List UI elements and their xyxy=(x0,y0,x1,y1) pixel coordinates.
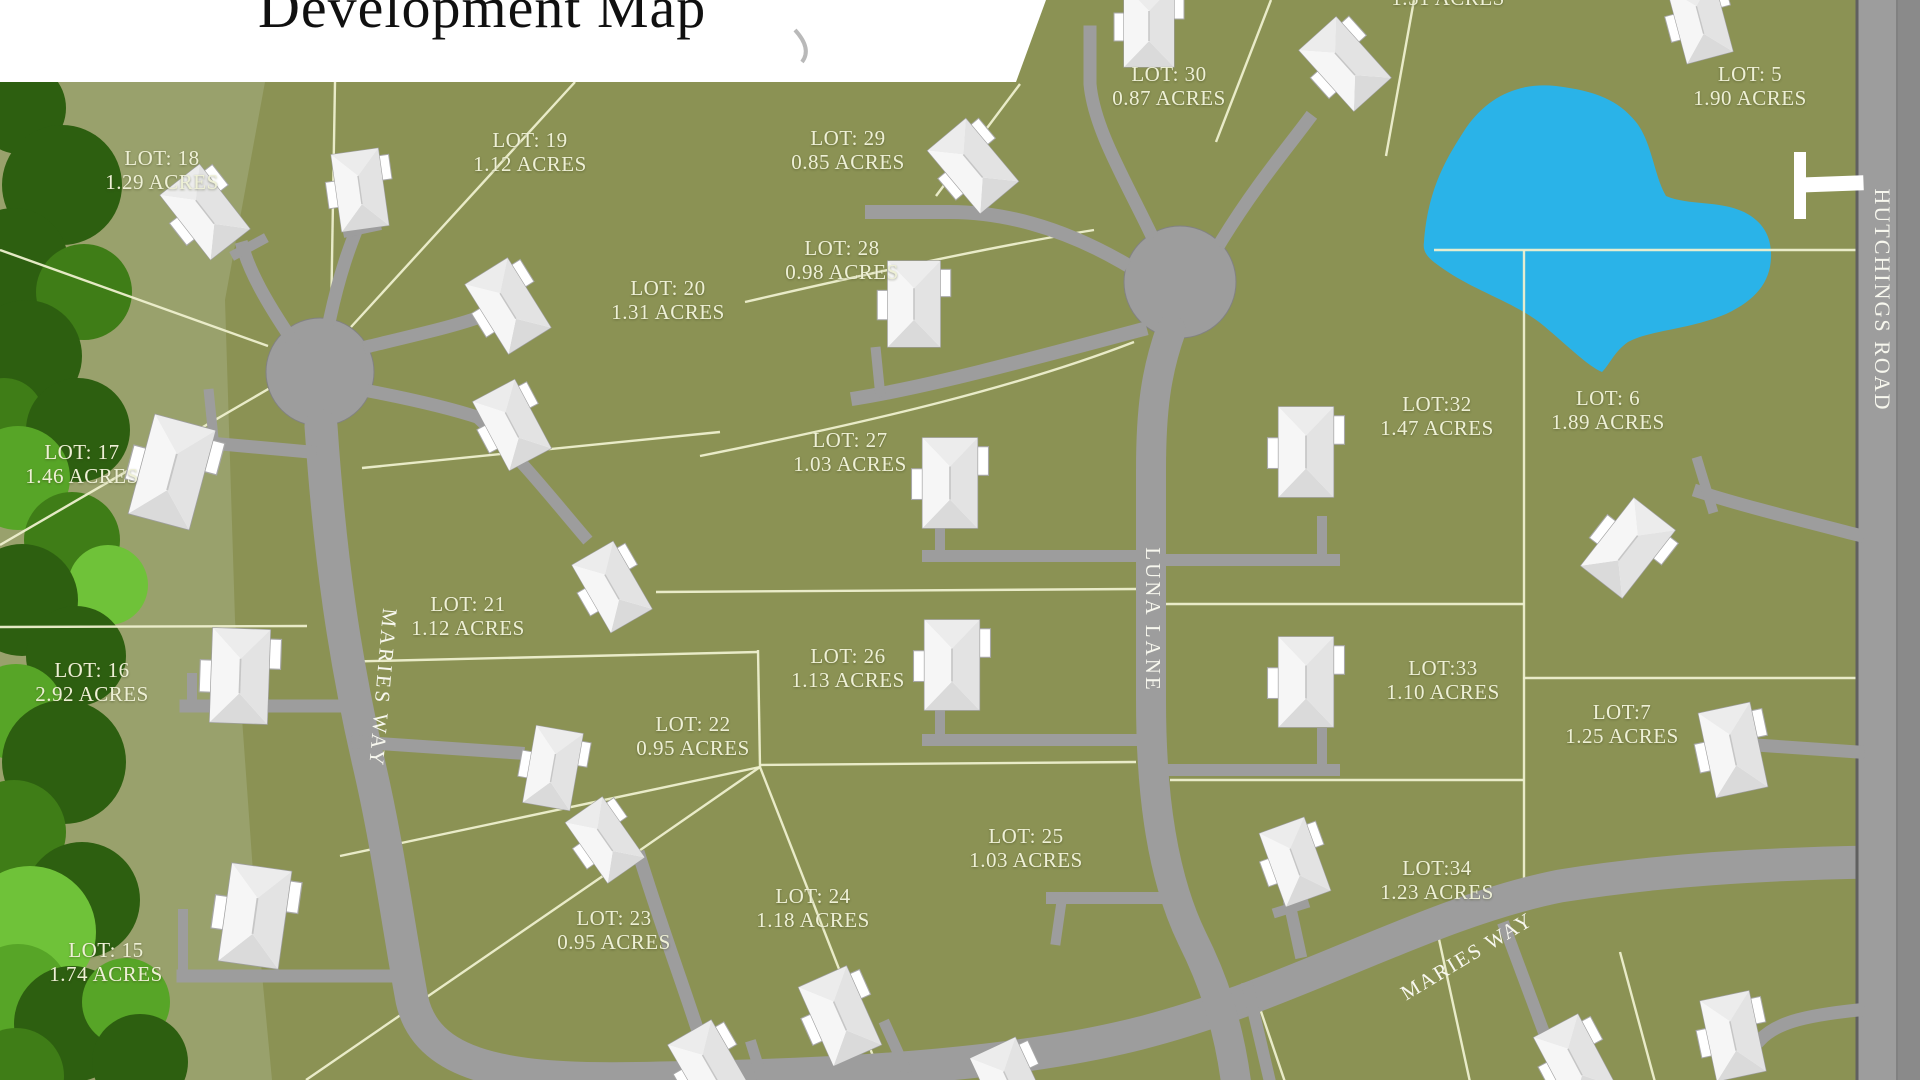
lot-label-15: LOT: 151.74 ACRES xyxy=(49,938,163,986)
lot-acreage: 1.13 ACRES xyxy=(791,668,905,692)
page-title: Development Map xyxy=(258,0,706,41)
lot-acreage: 1.29 ACRES xyxy=(105,170,219,194)
lot-label-31: 1.51 ACRES xyxy=(1391,0,1505,10)
lot-number: LOT: 6 xyxy=(1576,386,1640,410)
lot-acreage: 1.23 ACRES xyxy=(1380,880,1494,904)
lot-acreage: 1.46 ACRES xyxy=(25,464,139,488)
house-icon xyxy=(912,438,989,528)
lot-label-18: LOT: 181.29 ACRES xyxy=(105,146,219,194)
lot-acreage: 0.95 ACRES xyxy=(636,736,750,760)
lot-number: LOT: 19 xyxy=(492,128,567,152)
lot-label-25: LOT: 251.03 ACRES xyxy=(969,824,1083,872)
lot-number: LOT: 15 xyxy=(68,938,143,962)
lot-acreage: 1.90 ACRES xyxy=(1693,86,1807,110)
lot-label-32: LOT:321.47 ACRES xyxy=(1380,392,1494,440)
lot-number: LOT: 25 xyxy=(988,824,1063,848)
lot-acreage: 1.47 ACRES xyxy=(1380,416,1494,440)
lot-label-26: LOT: 261.13 ACRES xyxy=(791,644,905,692)
lot-label-34: LOT:341.23 ACRES xyxy=(1380,856,1494,904)
lot-label-22: LOT: 220.95 ACRES xyxy=(636,712,750,760)
lot-acreage: 1.12 ACRES xyxy=(411,616,525,640)
lot-number: LOT: 20 xyxy=(630,276,705,300)
lot-number: LOT:34 xyxy=(1402,856,1472,880)
lot-acreage: 1.03 ACRES xyxy=(793,452,907,476)
lot-label-7: LOT:71.25 ACRES xyxy=(1565,700,1679,748)
driveway xyxy=(876,352,880,392)
lot-label-27: LOT: 271.03 ACRES xyxy=(793,428,907,476)
lot-acreage: 1.25 ACRES xyxy=(1565,724,1679,748)
lot-number: LOT: 16 xyxy=(54,658,129,682)
lot-number: LOT: 18 xyxy=(124,146,199,170)
road-name-label: LUNA LANE xyxy=(1141,547,1165,692)
white-drive-marking xyxy=(1802,183,1856,185)
lot-acreage: 1.51 ACRES xyxy=(1391,0,1505,10)
lot-label-30: LOT: 300.87 ACRES xyxy=(1112,62,1226,110)
lot-acreage: 1.89 ACRES xyxy=(1551,410,1665,434)
lot-boundary-line xyxy=(0,626,307,627)
lot-number: LOT: 30 xyxy=(1131,62,1206,86)
lot-number: LOT: 23 xyxy=(576,906,651,930)
lot-acreage: 1.03 ACRES xyxy=(969,848,1083,872)
house-icon xyxy=(1268,637,1345,727)
lot-acreage: 0.87 ACRES xyxy=(1112,86,1226,110)
lot-acreage: 2.92 ACRES xyxy=(35,682,149,706)
lot-number: LOT: 26 xyxy=(810,644,885,668)
lot-acreage: 1.31 ACRES xyxy=(611,300,725,324)
lot-number: LOT:7 xyxy=(1593,700,1652,724)
lot-acreage: 0.95 ACRES xyxy=(557,930,671,954)
lot-number: LOT: 17 xyxy=(44,440,119,464)
lot-label-23: LOT: 230.95 ACRES xyxy=(557,906,671,954)
lot-label-20: LOT: 201.31 ACRES xyxy=(611,276,725,324)
lot-number: LOT: 21 xyxy=(430,592,505,616)
lot-label-33: LOT:331.10 ACRES xyxy=(1386,656,1500,704)
lot-label-16: LOT: 162.92 ACRES xyxy=(35,658,149,706)
lot-number: LOT: 22 xyxy=(655,712,730,736)
lot-label-6: LOT: 61.89 ACRES xyxy=(1551,386,1665,434)
lot-acreage: 1.18 ACRES xyxy=(756,908,870,932)
lot-number: LOT: 29 xyxy=(810,126,885,150)
lot-number: LOT: 5 xyxy=(1718,62,1782,86)
lot-acreage: 1.12 ACRES xyxy=(473,152,587,176)
driveway xyxy=(1056,898,1062,940)
lot-number: LOT: 24 xyxy=(775,884,850,908)
map-canvas: MARIES WAYLUNA LANEMARIES WAYHUTCHINGS R… xyxy=(0,0,1920,1080)
house-icon xyxy=(914,620,991,710)
lot-number: LOT:33 xyxy=(1408,656,1478,680)
house-icon xyxy=(1268,407,1345,497)
lot-number: LOT:32 xyxy=(1402,392,1472,416)
lot-label-29: LOT: 290.85 ACRES xyxy=(791,126,905,174)
lot-label-28: LOT: 280.98 ACRES xyxy=(785,236,899,284)
lot-label-17: LOT: 171.46 ACRES xyxy=(25,440,139,488)
development-map: MARIES WAYLUNA LANEMARIES WAYHUTCHINGS R… xyxy=(0,0,1920,1080)
road-name-label: HUTCHINGS ROAD xyxy=(1870,189,1895,412)
lot-number: LOT: 28 xyxy=(804,236,879,260)
lot-acreage: 0.98 ACRES xyxy=(785,260,899,284)
road-outer-strip xyxy=(1898,0,1920,1080)
lot-label-24: LOT: 241.18 ACRES xyxy=(756,884,870,932)
lot-label-19: LOT: 191.12 ACRES xyxy=(473,128,587,176)
lot-number: LOT: 27 xyxy=(812,428,887,452)
lot-acreage: 1.74 ACRES xyxy=(49,962,163,986)
house-icon xyxy=(1114,0,1184,67)
lot-acreage: 0.85 ACRES xyxy=(791,150,905,174)
lot-label-21: LOT: 211.12 ACRES xyxy=(411,592,525,640)
lot-acreage: 1.10 ACRES xyxy=(1386,680,1500,704)
lot-label-5: LOT: 51.90 ACRES xyxy=(1693,62,1807,110)
